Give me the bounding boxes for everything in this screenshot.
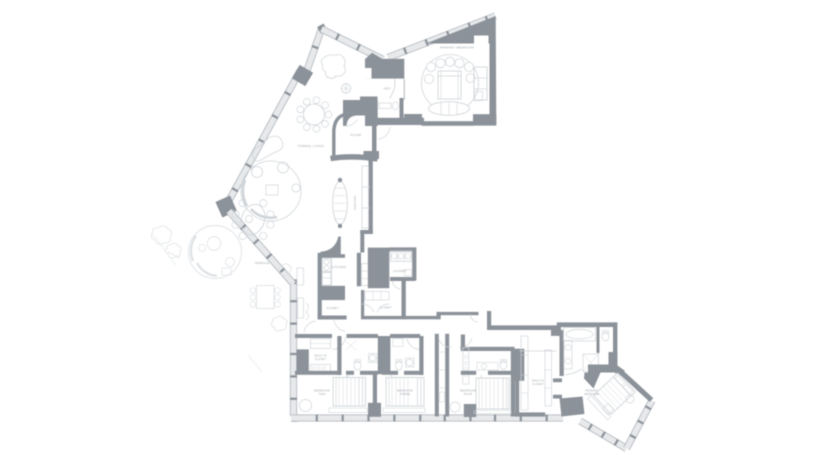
svg-text:CLOSET: CLOSET [532,383,544,386]
svg-text:FORMAL LIVING: FORMAL LIVING [298,144,325,148]
svg-text:FOUR: FOUR [464,392,473,396]
svg-text:KITCHEN: KITCHEN [332,265,346,269]
svg-text:BEDROOM: BEDROOM [397,389,413,393]
svg-text:PRIMARY BEDROOM: PRIMARY BEDROOM [440,46,474,50]
svg-text:BEDROOM: BEDROOM [314,389,330,393]
svg-text:BEDROOM: BEDROOM [460,389,476,393]
svg-text:TWO: TWO [318,392,325,396]
svg-text:BEDROOM: BEDROOM [585,393,600,396]
svg-text:VEST.: VEST. [384,88,392,91]
svg-text:CLOSET: CLOSET [315,358,327,361]
svg-text:THREE: THREE [400,392,410,396]
svg-text:LAUNDRY: LAUNDRY [393,269,407,273]
svg-text:CLOSET: CLOSET [379,306,391,310]
svg-text:GALLERY: GALLERY [353,196,357,211]
svg-text:CLOSET: CLOSET [326,306,338,310]
svg-text:FOYER: FOYER [351,133,362,137]
svg-text:TERRACE: TERRACE [254,261,269,265]
